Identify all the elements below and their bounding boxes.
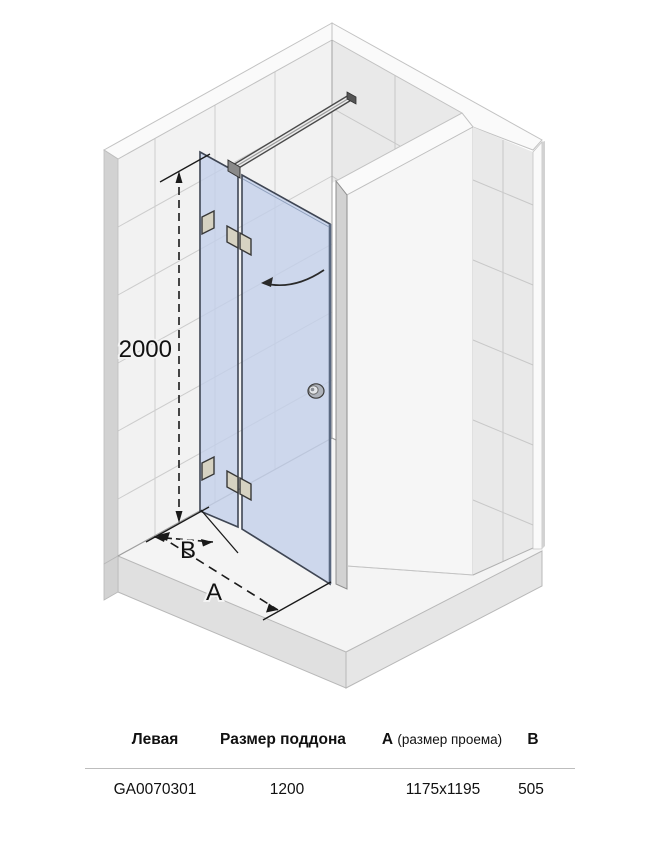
col-header-a-note: (размер проема) [397, 732, 502, 747]
left-outer-edge [104, 150, 118, 564]
partition-face [347, 127, 473, 575]
cell-b-value: 505 [518, 781, 544, 799]
col-header-b: В [527, 731, 538, 749]
tray-left-end [104, 556, 118, 600]
partition-wall [336, 127, 473, 589]
product-sheet: 2000 B A Левая Размер поддона А (размер … [0, 0, 650, 850]
shower-diagram: 2000 B A [0, 0, 650, 710]
glass-assembly [200, 152, 330, 584]
col-header-tray-size: Размер поддона [220, 731, 346, 749]
cell-tray-size: 1200 [270, 781, 304, 799]
cell-article: GA0070301 [114, 781, 197, 799]
width-dimension-label: A [206, 579, 222, 606]
right-wall [473, 127, 545, 575]
table-separator [85, 768, 575, 769]
col-header-a-label: А [382, 731, 393, 748]
door-knob [308, 384, 324, 398]
right-wall-outer-sliver [542, 141, 545, 549]
right-wall-outer-edge [533, 142, 542, 549]
cell-a-value: 1175x1195 [406, 781, 480, 799]
glass-door [242, 175, 330, 584]
col-header-a: А (размер проема) [382, 731, 502, 749]
col-header-orientation: Левая [132, 731, 179, 749]
height-dimension-label: 2000 [119, 336, 172, 363]
partition-edge-face [336, 181, 347, 589]
depth-dimension-label: B [180, 537, 196, 564]
